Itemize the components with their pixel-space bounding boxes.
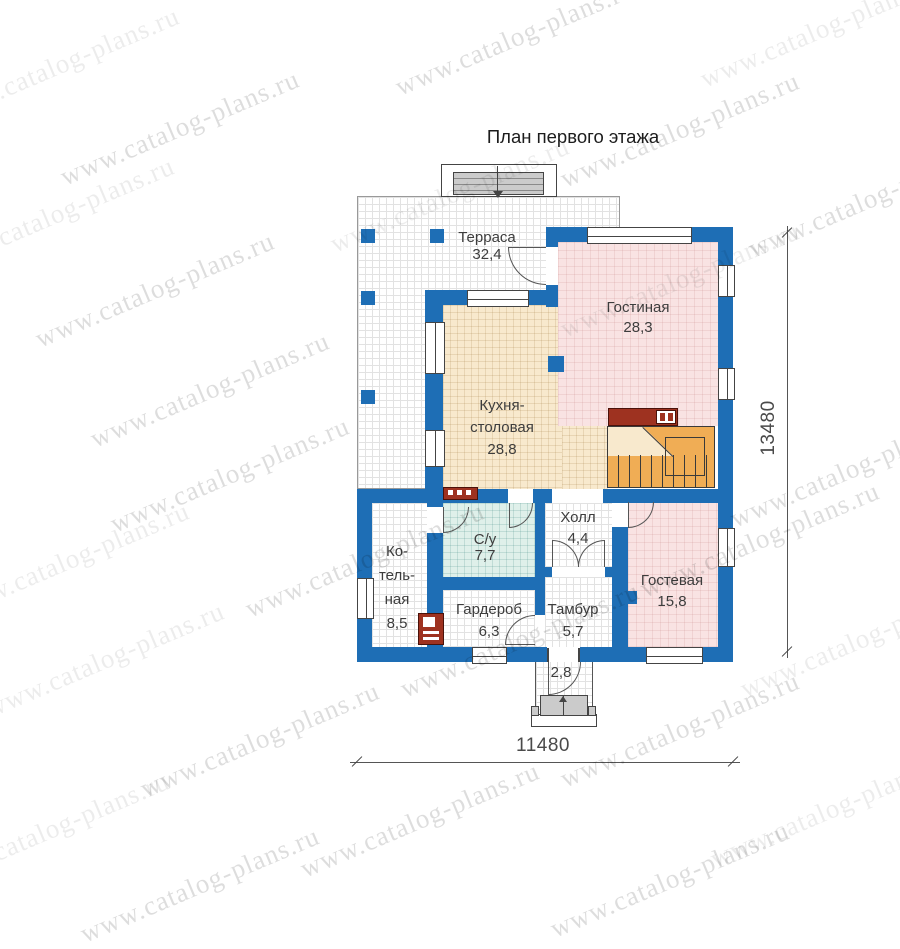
- firebox-detail: [660, 413, 665, 421]
- room-name: Кухня-: [470, 395, 534, 417]
- window: [718, 368, 735, 400]
- terrace-label: Терраса 32,4: [458, 229, 516, 263]
- column: [361, 390, 375, 404]
- room-name: тель-: [379, 564, 415, 588]
- boiler-room-label: Ко- тель- ная 8,5: [379, 540, 415, 636]
- entrance-threshold: [547, 648, 580, 662]
- room-name: ная: [379, 588, 415, 612]
- wardrobe-label: Гардероб 6,3: [456, 599, 522, 643]
- wall-segment: [427, 577, 545, 590]
- room-name: С/у: [474, 532, 497, 548]
- porch-steps-arrowhead: [559, 696, 567, 702]
- wall-segment: [535, 503, 545, 577]
- room-area: 8,5: [379, 612, 415, 636]
- wall-segment: [357, 489, 508, 503]
- hall-label: Холл 4,4: [560, 507, 595, 549]
- floor-plan: Терраса 32,4 Гостиная 28,3 Кухня- столов…: [0, 0, 900, 900]
- dimension-line-horizontal: [350, 762, 740, 763]
- wall-segment: [718, 295, 733, 368]
- column: [361, 229, 375, 243]
- room-area: 2,8: [551, 664, 572, 681]
- wall-segment: [612, 527, 628, 647]
- window: [718, 528, 735, 567]
- window: [646, 647, 703, 664]
- wall-segment: [718, 398, 733, 528]
- stove-burner: [466, 490, 471, 495]
- stove-burner: [448, 490, 453, 495]
- dimension-line-vertical: [787, 226, 788, 658]
- column: [361, 291, 375, 305]
- dimension-height-label: 13480: [758, 400, 780, 455]
- window: [718, 265, 735, 297]
- wall-segment: [701, 647, 733, 662]
- wall-segment: [505, 647, 547, 662]
- boiler-detail: [423, 617, 435, 627]
- wall-segment: [425, 290, 467, 305]
- column: [548, 356, 564, 372]
- wall-segment: [533, 489, 552, 503]
- window: [425, 430, 445, 467]
- wall-segment: [718, 227, 733, 265]
- wall-segment: [535, 590, 545, 615]
- column: [430, 229, 444, 243]
- page: { "title": "План первого этажа", "waterm…: [0, 0, 900, 900]
- room-name: Ко-: [379, 540, 415, 564]
- window: [425, 322, 445, 374]
- staircase-landing: [665, 437, 705, 476]
- wall-segment: [546, 285, 558, 307]
- wall-segment: [603, 489, 718, 503]
- wall-segment: [357, 617, 372, 647]
- room-area: 4,4: [560, 528, 595, 549]
- room-area: 28,8: [470, 439, 534, 461]
- boiler-detail: [423, 631, 439, 634]
- room-area: 5,7: [548, 621, 599, 643]
- porch-post-left: [531, 706, 539, 716]
- window: [587, 227, 692, 244]
- boiler-detail: [423, 637, 439, 640]
- window: [467, 290, 529, 307]
- wall-segment: [545, 567, 552, 577]
- wall-segment: [357, 647, 472, 662]
- room-name: Гостиная: [607, 298, 670, 318]
- room-area: 28,3: [607, 318, 670, 338]
- wall-segment: [425, 372, 443, 430]
- kitchen-label: Кухня- столовая 28,8: [470, 395, 534, 461]
- wall-segment: [427, 503, 443, 507]
- room-name: Гостевая: [641, 570, 703, 591]
- page-title: План первого этажа: [487, 126, 659, 148]
- wall-segment: [546, 227, 558, 247]
- room-name: Холл: [560, 507, 595, 528]
- living-room-label: Гостиная 28,3: [607, 298, 670, 338]
- guest-room-label: Гостевая 15,8: [641, 570, 703, 612]
- terrace-steps-arrowhead: [493, 191, 503, 198]
- room-area: 6,3: [456, 621, 522, 643]
- bathroom-label: С/у 7,7: [474, 532, 497, 564]
- room-area: 7,7: [474, 548, 497, 564]
- wall-segment: [580, 647, 646, 662]
- room-area: 32,4: [458, 246, 516, 263]
- wall-segment: [357, 490, 372, 578]
- room-name: Терраса: [458, 229, 516, 246]
- window: [357, 578, 374, 619]
- terrace-steps-arrow: [497, 166, 498, 192]
- pilaster: [628, 591, 637, 604]
- dimension-width-label: 11480: [516, 735, 570, 757]
- porch-post-right: [588, 706, 596, 716]
- wall-segment: [605, 567, 612, 577]
- room-name: столовая: [470, 417, 534, 439]
- fireplace-firebox: [656, 410, 676, 424]
- stove-burner: [457, 490, 462, 495]
- wall-segment: [527, 290, 546, 305]
- wall-segment: [425, 465, 443, 490]
- room-area: 15,8: [641, 591, 703, 612]
- porch-label: 2,8: [551, 664, 572, 681]
- room-name: Тамбур: [548, 599, 599, 621]
- vestibule-label: Тамбур 5,7: [548, 599, 599, 643]
- room-name: Гардероб: [456, 599, 522, 621]
- firebox-detail: [668, 413, 673, 421]
- window: [472, 647, 507, 664]
